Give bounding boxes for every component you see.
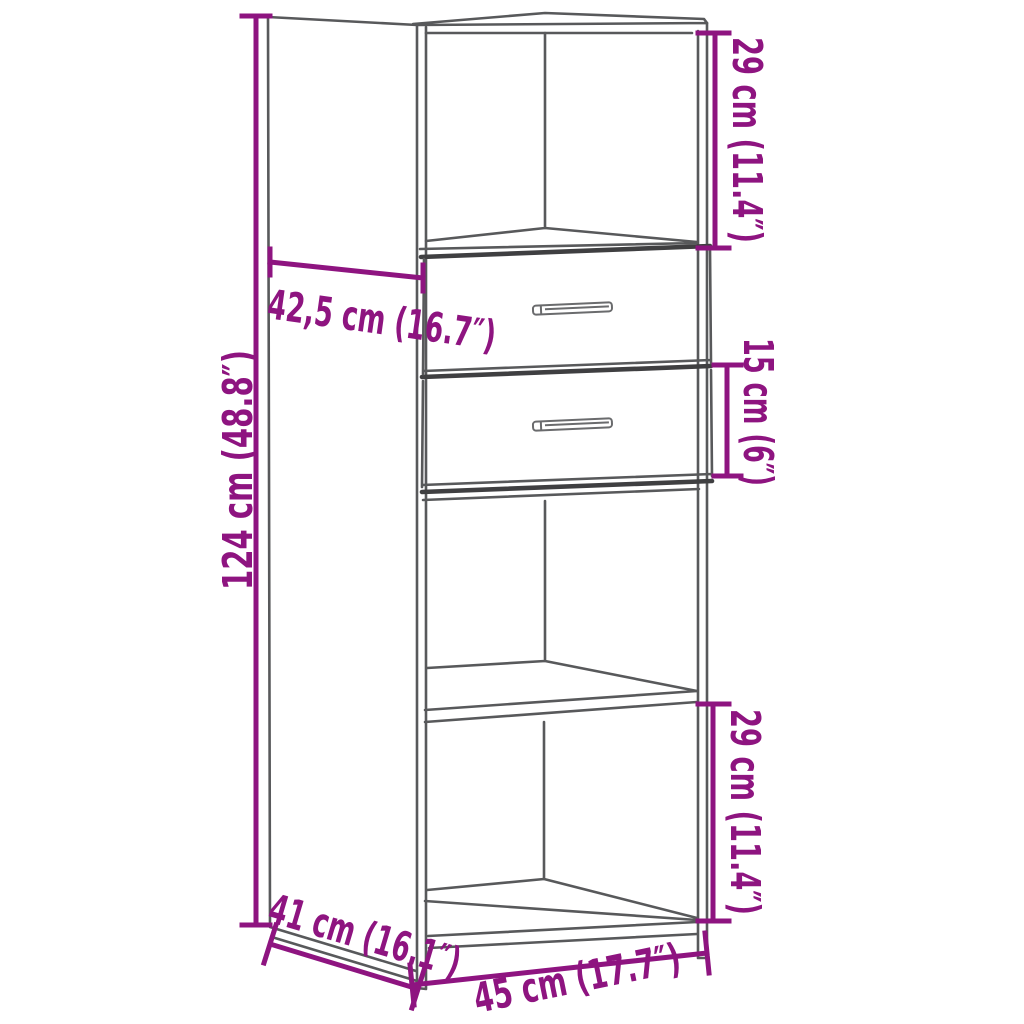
highboard-dimension-diagram: 124 cm (48.8″) 42,5 cm (16.7″) 29 cm (11… [0, 0, 1024, 1024]
dim-drawer-height: 15 cm (6″) [714, 338, 782, 486]
dim-upper-depth: 42,5 cm (16.7″) [265, 249, 499, 360]
dim-drawer-height-label: 15 cm (6″) [734, 338, 782, 486]
cabinet-top-compartment [420, 33, 697, 249]
dim-width-label: 45 cm (17.7″) [469, 934, 684, 1023]
cabinet-top-panel [413, 13, 707, 33]
dim-lower-compartment-height: 29 cm (11.4″) [698, 704, 769, 921]
cabinet-middle-shelf [425, 501, 697, 722]
dim-upper-compartment-height: 29 cm (11.4″) [698, 33, 771, 248]
dim-upper-compartment-label: 29 cm (11.4″) [723, 37, 771, 243]
drawer-1-handle [533, 302, 612, 315]
cabinet-front-left-edge [417, 25, 426, 989]
dim-lower-compartment-label: 29 cm (11.4″) [721, 709, 769, 915]
dim-total-height: 124 cm (48.8″) [214, 16, 270, 925]
cabinet-left-panel [268, 17, 417, 981]
cabinet-bottom-compartment [425, 722, 697, 920]
cabinet-front-right-edge [698, 23, 707, 958]
drawer-2-handle [533, 418, 612, 431]
dim-upper-depth-label: 42,5 cm (16.7″) [265, 280, 499, 360]
dim-lower-depth: 41 cm (16.1″) [263, 885, 466, 1008]
diagram-canvas: 124 cm (48.8″) 42,5 cm (16.7″) 29 cm (11… [0, 0, 1024, 1024]
dim-total-height-label: 124 cm (48.8″) [214, 350, 262, 590]
cabinet-drawing [268, 13, 712, 989]
